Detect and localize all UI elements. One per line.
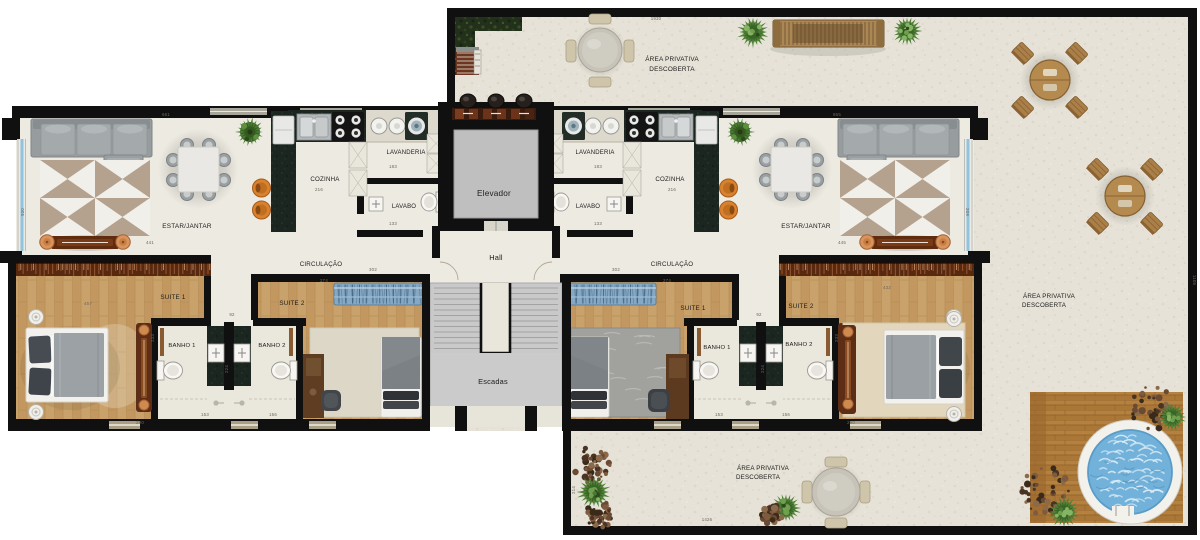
svg-text:Escadas: Escadas xyxy=(478,377,508,386)
svg-text:SUITE 1: SUITE 1 xyxy=(680,305,705,312)
svg-text:133: 133 xyxy=(594,221,602,226)
svg-text:661: 661 xyxy=(162,112,170,117)
svg-text:BANHO 2: BANHO 2 xyxy=(258,343,285,349)
svg-text:LAVANDERIA: LAVANDERIA xyxy=(575,150,614,156)
svg-text:LAVANDERIA: LAVANDERIA xyxy=(386,150,425,156)
svg-text:224: 224 xyxy=(224,365,229,373)
svg-text:SUITE 1: SUITE 1 xyxy=(160,294,185,301)
svg-text:DESCOBERTA: DESCOBERTA xyxy=(1022,302,1067,309)
svg-text:1105: 1105 xyxy=(1192,275,1197,286)
svg-text:1426: 1426 xyxy=(702,517,713,522)
svg-text:302: 302 xyxy=(369,267,377,272)
svg-text:COZINHA: COZINHA xyxy=(655,176,685,183)
svg-text:290: 290 xyxy=(136,420,144,425)
svg-text:930: 930 xyxy=(20,208,25,216)
svg-text:290: 290 xyxy=(847,420,855,425)
svg-text:208: 208 xyxy=(965,208,970,216)
svg-text:SUITE 2: SUITE 2 xyxy=(279,300,304,307)
svg-text:441: 441 xyxy=(146,240,154,245)
svg-text:1930: 1930 xyxy=(651,16,662,21)
svg-text:224: 224 xyxy=(760,365,765,373)
svg-text:156: 156 xyxy=(782,412,790,417)
svg-text:233: 233 xyxy=(150,334,155,342)
svg-text:BANHO 1: BANHO 1 xyxy=(168,343,195,349)
svg-text:156: 156 xyxy=(269,412,277,417)
svg-text:ESTAR/JANTAR: ESTAR/JANTAR xyxy=(162,223,212,230)
svg-text:432: 432 xyxy=(883,285,891,290)
svg-text:ÁREA PRIVATIVA: ÁREA PRIVATIVA xyxy=(1023,293,1076,300)
svg-text:DESCOBERTA: DESCOBERTA xyxy=(736,474,781,481)
svg-text:Hall: Hall xyxy=(489,253,503,262)
svg-text:LAVABO: LAVABO xyxy=(576,204,600,210)
svg-text:ÁREA PRIVATIVA: ÁREA PRIVATIVA xyxy=(737,465,790,472)
svg-text:LAVABO: LAVABO xyxy=(392,204,416,210)
svg-text:274: 274 xyxy=(320,278,328,283)
svg-text:153: 153 xyxy=(715,412,723,417)
svg-text:445: 445 xyxy=(838,240,846,245)
svg-text:274: 274 xyxy=(663,278,671,283)
svg-text:216: 216 xyxy=(668,187,676,192)
svg-text:BANHO 1: BANHO 1 xyxy=(703,345,730,351)
svg-text:457: 457 xyxy=(84,301,92,306)
svg-text:233: 233 xyxy=(834,334,839,342)
svg-text:214: 214 xyxy=(571,486,576,494)
svg-text:92: 92 xyxy=(229,312,235,317)
svg-text:153: 153 xyxy=(201,412,209,417)
svg-text:COZINHA: COZINHA xyxy=(310,176,340,183)
svg-text:BANHO 2: BANHO 2 xyxy=(785,342,812,348)
svg-text:92: 92 xyxy=(756,312,762,317)
svg-text:133: 133 xyxy=(389,221,397,226)
svg-text:865: 865 xyxy=(833,112,841,117)
svg-text:Elevador: Elevador xyxy=(477,189,511,198)
svg-text:DESCOBERTA: DESCOBERTA xyxy=(649,66,695,73)
svg-text:216: 216 xyxy=(315,187,323,192)
svg-text:CIRCULAÇÃO: CIRCULAÇÃO xyxy=(300,261,343,268)
svg-text:ÁREA PRIVATIVA: ÁREA PRIVATIVA xyxy=(645,54,699,63)
svg-text:SUITE 2: SUITE 2 xyxy=(788,303,813,310)
svg-text:CIRCULAÇÃO: CIRCULAÇÃO xyxy=(651,261,694,268)
svg-text:ESTAR/JANTAR: ESTAR/JANTAR xyxy=(781,223,831,230)
svg-text:183: 183 xyxy=(594,164,602,169)
svg-text:183: 183 xyxy=(389,164,397,169)
svg-text:302: 302 xyxy=(612,267,620,272)
